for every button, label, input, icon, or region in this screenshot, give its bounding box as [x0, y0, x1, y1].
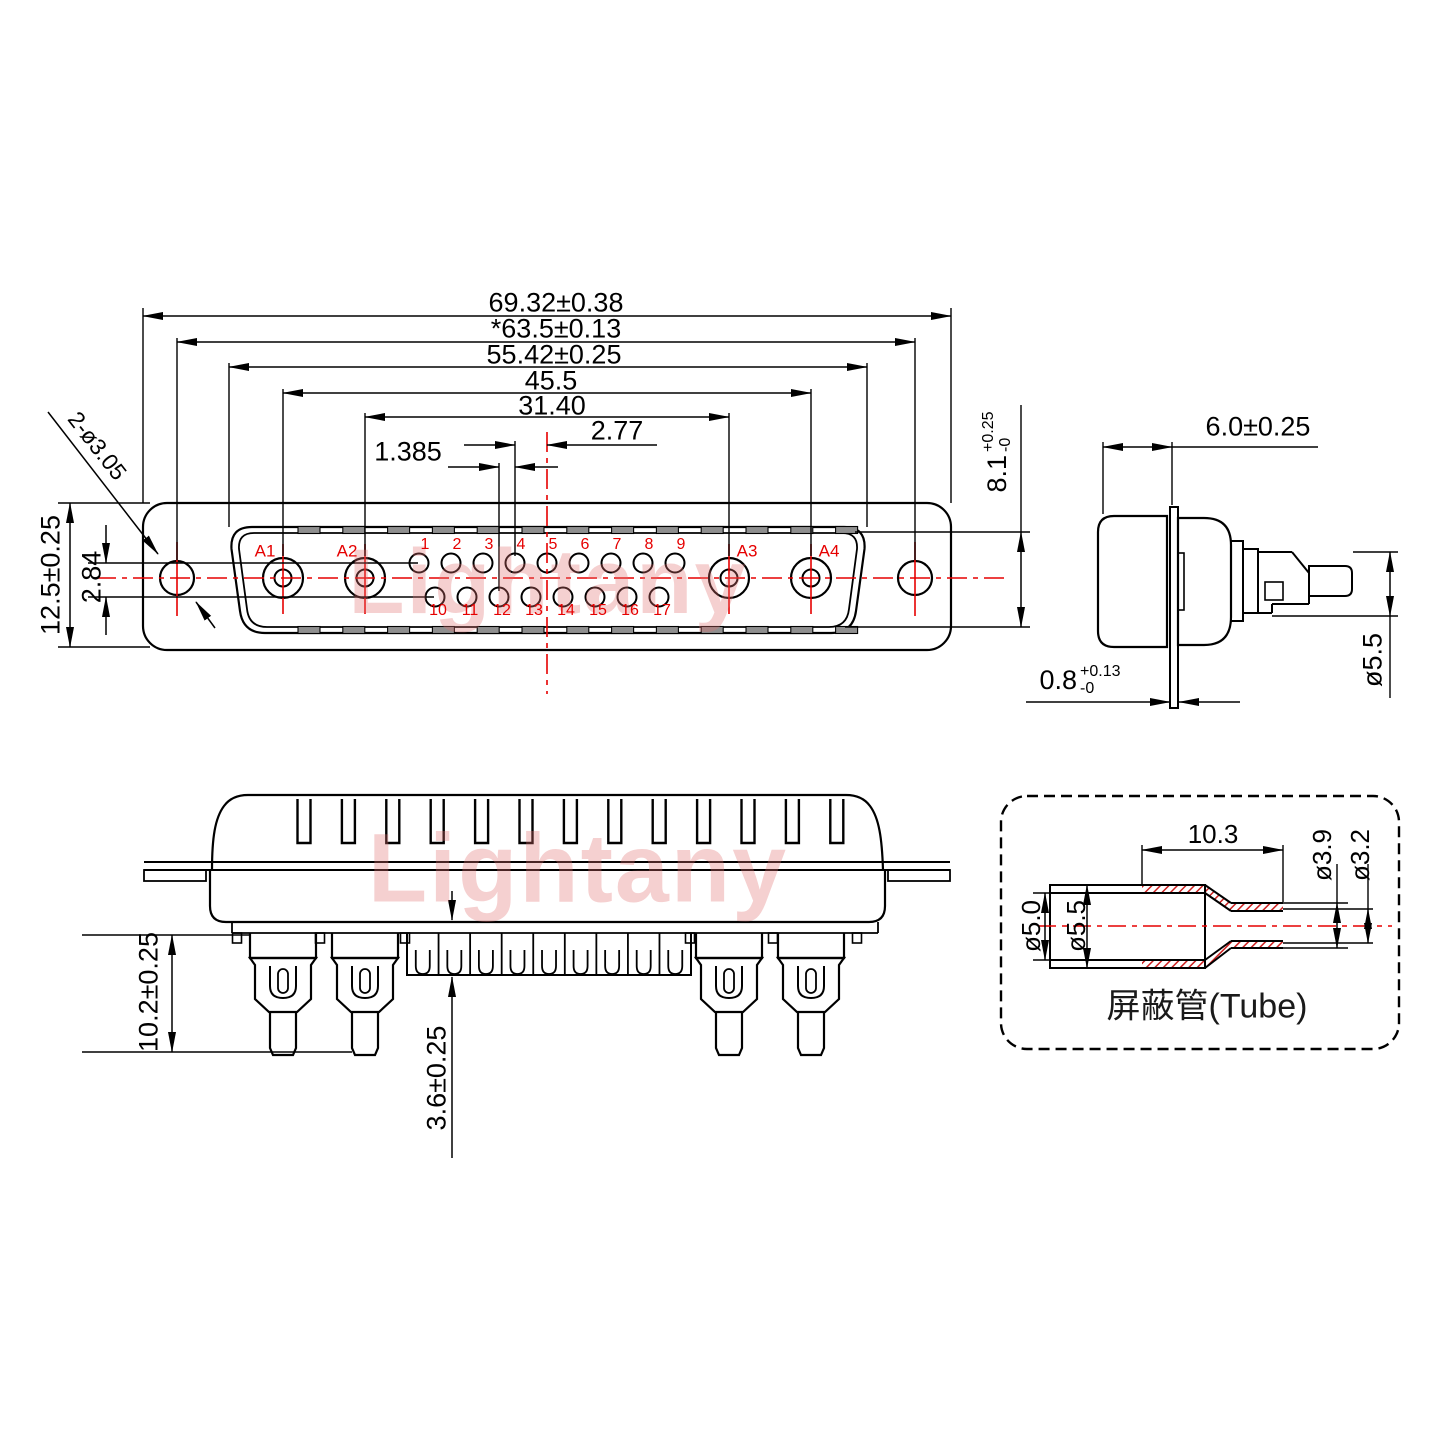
pin-number-label: 16 — [621, 603, 639, 619]
tube-title: 屏蔽管(Tube) — [1107, 979, 1308, 1028]
dim-shroud-height-minus: -0 — [998, 411, 1015, 451]
pin-number-label: 10 — [429, 603, 447, 619]
dim-height: 12.5±0.25 — [38, 515, 65, 635]
dim-insulator-height: 3.6±0.25 — [424, 1026, 451, 1131]
pin-number-label: 13 — [525, 603, 543, 619]
dim-shroud-height: 8.1 +0.25 -0 — [981, 411, 1015, 492]
pin-number-label: 17 — [653, 603, 671, 619]
contact-label: A3 — [737, 543, 758, 560]
pin-number-label: 6 — [581, 537, 590, 553]
dim-width-shroud: 55.42±0.25 — [487, 342, 622, 369]
dim-depth: 6.0±0.25 — [1206, 414, 1311, 441]
dim-tube-body-outer: ø5.5 — [1063, 900, 1089, 952]
dim-shroud-height-plus: +0.25 — [981, 411, 998, 451]
dimension-labels: 69.32±0.38 *63.5±0.13 55.42±0.25 45.5 31… — [0, 0, 1440, 1440]
dim-tube-crimp-length: 10.3 — [1188, 821, 1239, 847]
pin-number-label: 12 — [493, 603, 511, 619]
dim-width-a-inner: 31.40 — [518, 393, 586, 420]
connector-engineering-drawing: Lightany Lightany 69.32±0.38 *63.5±0.13 … — [0, 0, 1440, 1440]
dim-tube-neck-inner: ø3.2 — [1347, 829, 1373, 881]
pin-number-label: 9 — [677, 537, 686, 553]
dim-tail-length: 10.2±0.25 — [136, 932, 163, 1052]
dim-mount-holes: 2-ø3.05 — [64, 408, 131, 485]
dim-flange-thickness: 0.8 +0.13 -0 — [1039, 664, 1120, 698]
dim-flange-thickness-minus: -0 — [1080, 681, 1120, 698]
dim-flange-thickness-plus: +0.13 — [1080, 664, 1120, 681]
pin-number-label: 15 — [589, 603, 607, 619]
dim-tube-neck-outer: ø3.9 — [1309, 829, 1335, 881]
pin-number-label: 4 — [517, 537, 526, 553]
dim-pin-pitch: 2.77 — [591, 418, 644, 445]
dim-flange-thickness-main: 0.8 — [1039, 668, 1077, 695]
contact-label: A2 — [337, 543, 358, 560]
dim-tube-body-inner: ø5.0 — [1018, 900, 1044, 952]
pin-number-label: 11 — [462, 603, 479, 619]
dim-row-gap: 2.84 — [79, 551, 106, 604]
dim-pin-diameter: ø5.5 — [1360, 633, 1387, 687]
pin-number-label: 8 — [645, 537, 654, 553]
pin-number-label: 7 — [613, 537, 622, 553]
pin-number-label: 5 — [549, 537, 558, 553]
dim-shroud-height-main: 8.1 — [985, 455, 1012, 493]
pin-number-label: 2 — [453, 537, 462, 553]
pin-number-label: 3 — [485, 537, 494, 553]
dim-width-mount: *63.5±0.13 — [491, 316, 621, 343]
contact-label: A1 — [255, 543, 276, 560]
pin-number-label: 1 — [421, 537, 430, 553]
dim-half-pitch: 1.385 — [374, 439, 442, 466]
dim-width-outer: 69.32±0.38 — [489, 290, 624, 317]
contact-label: A4 — [819, 543, 840, 560]
pin-number-label: 14 — [557, 603, 575, 619]
